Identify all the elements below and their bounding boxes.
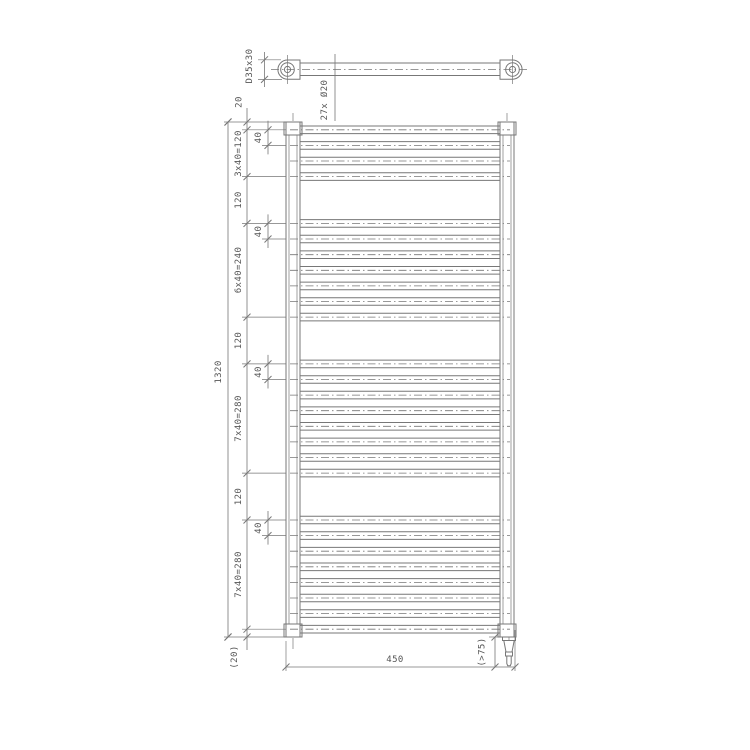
label-segment: 3x40=120 <box>234 130 244 177</box>
label-segment: 6x40=240 <box>234 247 244 294</box>
label-segment: 7x40=280 <box>234 551 244 598</box>
label-clearance: (>75) <box>478 637 488 666</box>
label-bottom-offset: (20) <box>230 645 240 668</box>
label-pitch-40: 40 <box>254 366 264 378</box>
label-pitch-40: 40 <box>254 226 264 238</box>
right-collector-bottom-cap <box>498 624 516 637</box>
top-view <box>258 52 529 121</box>
radiator-technical-drawing: D35x30 27x Ø20 20 1320 3x40=120 120 6x40… <box>0 0 750 750</box>
label-width: 450 <box>386 655 403 665</box>
label-collector-profile: D35x30 <box>245 49 255 84</box>
label-segment: 120 <box>234 332 244 349</box>
drawing-canvas: D35x30 27x Ø20 20 1320 3x40=120 120 6x40… <box>0 0 750 750</box>
right-collector-top-cap <box>498 122 516 135</box>
label-overall-height: 1320 <box>214 360 224 383</box>
label-pitch-40: 40 <box>254 132 264 144</box>
label-top-offset: 20 <box>235 96 245 108</box>
label-segment: 7x40=280 <box>234 395 244 442</box>
label-tube-spec: 27x Ø20 <box>319 80 330 121</box>
heating-element <box>503 637 516 666</box>
label-segment: 120 <box>234 191 244 208</box>
label-segment: 120 <box>234 488 244 505</box>
left-collector-bottom-cap <box>284 624 302 637</box>
left-collector-top-cap <box>284 122 302 135</box>
label-pitch-40: 40 <box>254 522 264 534</box>
